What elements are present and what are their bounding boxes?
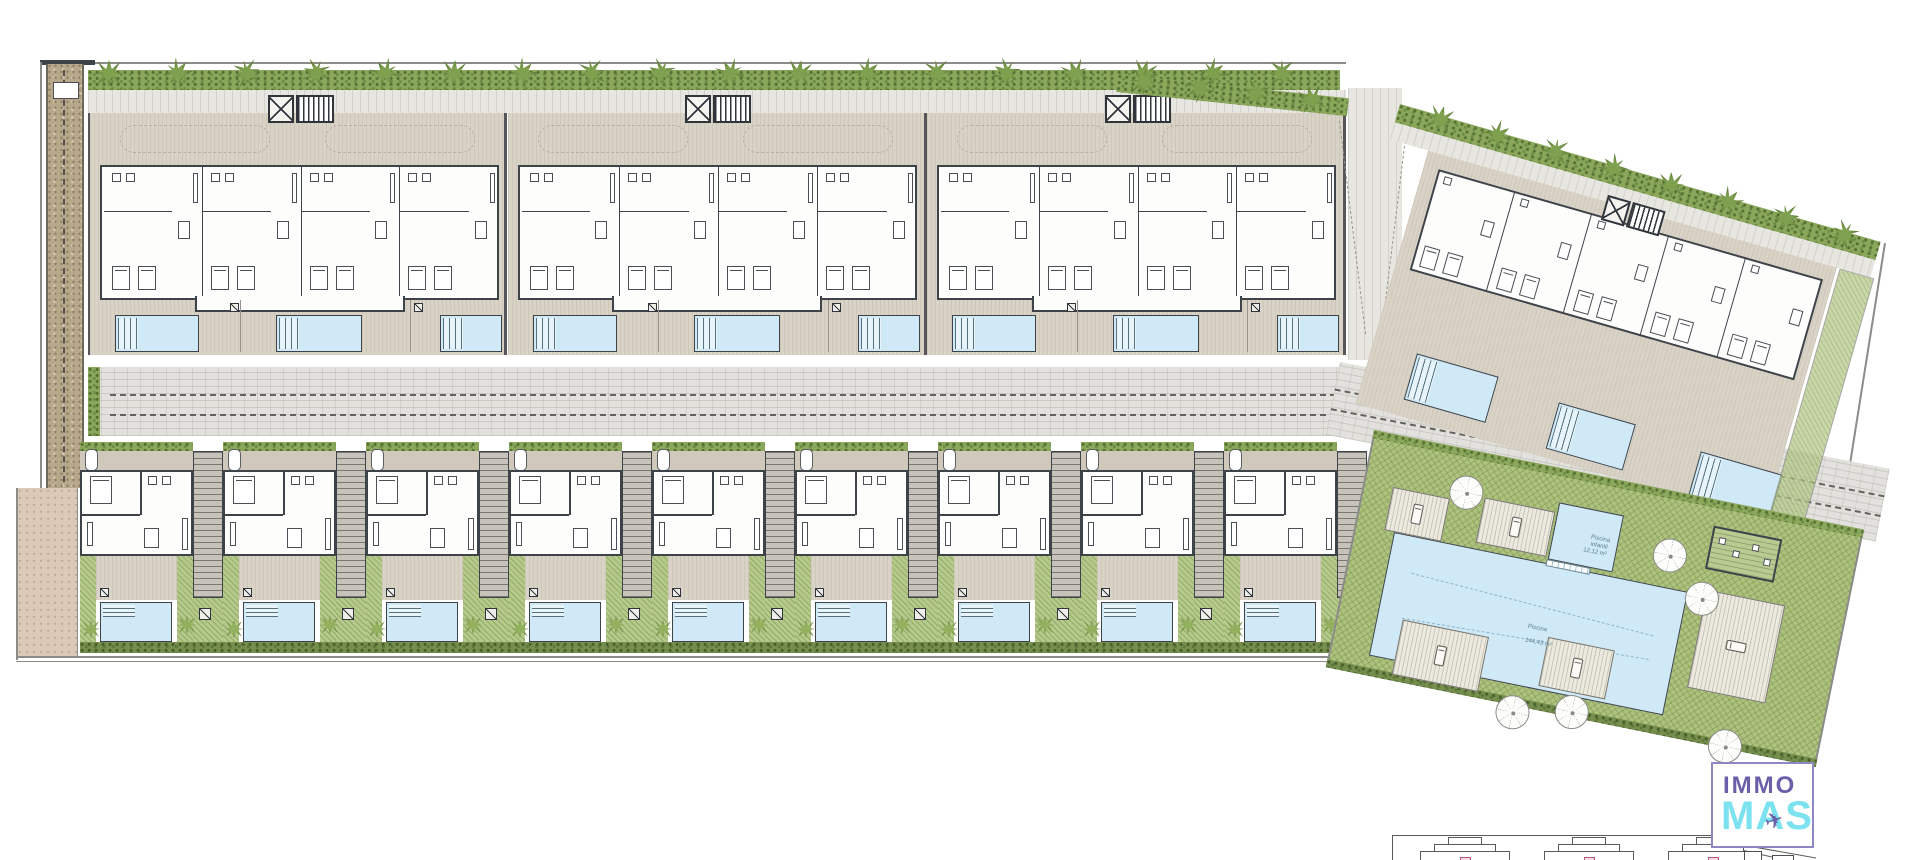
bathroom-fixture bbox=[1259, 173, 1268, 182]
bathroom-fixture bbox=[1673, 242, 1683, 252]
bathroom-fixture bbox=[1292, 476, 1301, 485]
interior-wall-v bbox=[426, 472, 428, 515]
planter-box bbox=[100, 588, 109, 597]
private-pool bbox=[694, 315, 780, 352]
bed-icon bbox=[519, 476, 541, 504]
entry-terrace bbox=[938, 451, 1051, 470]
bed-icon bbox=[112, 266, 130, 290]
bathroom-fixture bbox=[642, 173, 651, 182]
kitchen-counter bbox=[1183, 518, 1189, 550]
pool-steps bbox=[961, 605, 993, 617]
pergola-seat bbox=[1732, 550, 1740, 558]
bed-icon bbox=[310, 266, 328, 290]
bathroom-fixture bbox=[448, 476, 457, 485]
bed-icon bbox=[975, 266, 993, 290]
private-pool bbox=[1113, 315, 1199, 352]
garden-between bbox=[1051, 598, 1081, 642]
apartment-cluster bbox=[100, 165, 499, 300]
lounger-icon bbox=[1509, 516, 1523, 538]
townhouse-unit bbox=[223, 442, 366, 642]
townhouse-rooms bbox=[366, 470, 479, 556]
kitchen-counter bbox=[1326, 518, 1332, 550]
gate-box bbox=[53, 82, 79, 99]
pool-steps bbox=[1116, 318, 1136, 349]
interior-wall-v bbox=[855, 472, 857, 515]
main-pool-name: Piscina bbox=[1527, 623, 1547, 634]
townhouse-unit bbox=[652, 442, 795, 642]
entry-terrace bbox=[80, 451, 193, 470]
bathroom-fixture bbox=[310, 173, 319, 182]
palm-icon bbox=[1036, 616, 1054, 634]
planter-box bbox=[243, 588, 252, 597]
bed-icon bbox=[1519, 274, 1540, 300]
dining-table bbox=[475, 221, 487, 239]
bed-icon bbox=[1650, 312, 1671, 338]
bed-icon bbox=[654, 266, 672, 290]
interior-wall-v bbox=[998, 472, 1000, 515]
road-dash-1 bbox=[110, 394, 1346, 396]
planter-box bbox=[386, 588, 395, 597]
kitchen-counter bbox=[1129, 173, 1134, 203]
gravel-path-left-lower bbox=[18, 488, 78, 656]
palm-icon bbox=[893, 616, 911, 634]
bathtub-icon bbox=[371, 449, 384, 471]
garden-between bbox=[1194, 598, 1224, 642]
planter-box bbox=[1101, 588, 1110, 597]
sofa-icon bbox=[945, 522, 951, 546]
townhouse-unit bbox=[80, 442, 223, 642]
townhouse-top-hedge bbox=[795, 442, 908, 451]
planter-box bbox=[771, 608, 783, 620]
sofa-icon bbox=[659, 522, 665, 546]
elevator-icon bbox=[1105, 95, 1131, 123]
terrace-guide bbox=[120, 125, 270, 153]
bed-icon bbox=[408, 266, 426, 290]
dining-table bbox=[375, 221, 387, 239]
townhouse-pool bbox=[243, 602, 315, 642]
palm-icon bbox=[940, 620, 958, 638]
townhouse-unit bbox=[795, 442, 938, 642]
apartment-corridor-wall bbox=[400, 211, 469, 212]
bathroom-fixture bbox=[1048, 173, 1057, 182]
elevation-unit bbox=[1544, 837, 1634, 860]
elevator-icon bbox=[685, 95, 711, 123]
interior-wall-h bbox=[1226, 514, 1284, 516]
stairwell bbox=[908, 451, 938, 598]
terrace-guide bbox=[1162, 125, 1312, 153]
bathroom-fixture bbox=[1443, 176, 1453, 186]
terrace-divider bbox=[240, 300, 241, 352]
kitchen-counter bbox=[808, 173, 813, 203]
bed-icon bbox=[1245, 266, 1263, 290]
bathtub-icon bbox=[228, 449, 241, 471]
bathroom-fixture bbox=[324, 173, 333, 182]
pool-steps bbox=[103, 605, 135, 617]
site-boundary-top bbox=[40, 62, 1346, 64]
bathroom-fixture bbox=[1306, 476, 1315, 485]
pool-steps bbox=[389, 605, 421, 617]
bathroom-fixture bbox=[126, 173, 135, 182]
apartment-corridor-wall bbox=[1040, 211, 1108, 212]
bathroom-fixture bbox=[949, 173, 958, 182]
dining-table bbox=[1711, 286, 1726, 304]
bed-icon bbox=[556, 266, 574, 290]
planter-box bbox=[1067, 303, 1076, 312]
dining-table bbox=[1145, 528, 1160, 548]
bathroom-fixture bbox=[148, 476, 157, 485]
kitchen-counter bbox=[908, 173, 913, 203]
bed-icon bbox=[1750, 340, 1771, 366]
dining-table bbox=[573, 528, 588, 548]
bathroom-fixture bbox=[112, 173, 121, 182]
townhouse-pool bbox=[958, 602, 1030, 642]
apartment-corridor-wall bbox=[719, 211, 787, 212]
elevation-unit bbox=[1420, 837, 1510, 860]
garden-between bbox=[479, 598, 509, 642]
apartment-unit bbox=[522, 167, 621, 298]
bathroom-fixture bbox=[1245, 173, 1254, 182]
pool-steps bbox=[697, 318, 717, 349]
townhouse-top-hedge bbox=[1224, 442, 1337, 451]
palm-icon bbox=[321, 616, 339, 634]
townhouse-rooms bbox=[509, 470, 622, 556]
planter-box bbox=[1244, 588, 1253, 597]
palm-icon bbox=[511, 620, 529, 638]
bed-icon bbox=[949, 266, 967, 290]
private-pool bbox=[533, 315, 617, 352]
planter-box bbox=[199, 608, 211, 620]
interior-wall-v bbox=[1141, 472, 1143, 515]
apartment-cluster bbox=[518, 165, 917, 300]
apartment-module bbox=[88, 113, 507, 355]
bed-icon bbox=[1074, 266, 1092, 290]
bed-icon bbox=[1496, 267, 1517, 293]
townhouse-rooms bbox=[795, 470, 908, 556]
apartment-corridor-wall bbox=[302, 211, 370, 212]
pergola-seat bbox=[1718, 537, 1726, 545]
elevator-icon bbox=[268, 95, 294, 123]
apartment-module bbox=[508, 113, 927, 355]
townhouse-top-hedge bbox=[1081, 442, 1194, 451]
kitchen-counter bbox=[610, 173, 615, 203]
apartment-unit bbox=[1237, 167, 1336, 298]
bathroom-fixture bbox=[720, 476, 729, 485]
bathroom-fixture bbox=[591, 476, 600, 485]
townhouse-pool bbox=[529, 602, 601, 642]
palm-icon bbox=[750, 616, 768, 634]
pergola-seat bbox=[1763, 558, 1771, 566]
road-dash-2 bbox=[110, 414, 1346, 416]
bed-icon bbox=[1727, 334, 1748, 360]
tree-icon bbox=[1658, 172, 1684, 198]
garden-between bbox=[336, 598, 366, 642]
stairs-icon bbox=[296, 95, 334, 123]
dining-table bbox=[1312, 221, 1324, 239]
townhouse-unit bbox=[366, 442, 509, 642]
stairs-icon bbox=[713, 95, 751, 123]
townhouse-pool bbox=[1244, 602, 1316, 642]
townhouse-bottom-hedge bbox=[80, 642, 1368, 653]
bed-icon bbox=[1442, 252, 1463, 278]
palm-icon bbox=[654, 620, 672, 638]
terrace-divider bbox=[410, 300, 411, 352]
dining-table bbox=[1288, 528, 1303, 548]
townhouse-pool bbox=[386, 602, 458, 642]
interior-wall-h bbox=[797, 514, 855, 516]
kitchen-counter bbox=[292, 173, 297, 203]
bed-icon bbox=[138, 266, 156, 290]
interior-wall-h bbox=[368, 514, 426, 516]
dining-table bbox=[1015, 221, 1027, 239]
apartment-unit bbox=[941, 167, 1040, 298]
kitchen-counter bbox=[1030, 173, 1035, 203]
kitchen-counter bbox=[325, 518, 331, 550]
site-boundary-left-upper bbox=[40, 62, 42, 490]
bathroom-fixture bbox=[162, 476, 171, 485]
bathroom-fixture bbox=[1020, 476, 1029, 485]
site-plan-canvas: Piscina 144,43 m² Piscina infantil 12,12… bbox=[0, 0, 1920, 860]
interior-wall-h bbox=[940, 514, 998, 516]
palm-icon bbox=[82, 620, 100, 638]
kitchen-counter bbox=[468, 518, 474, 550]
bed-icon bbox=[662, 476, 684, 504]
bathroom-fixture bbox=[1163, 476, 1172, 485]
private-pool bbox=[276, 315, 362, 352]
palm-icon bbox=[368, 620, 386, 638]
dining-table bbox=[859, 528, 874, 548]
bathroom-fixture bbox=[741, 173, 750, 182]
palm-icon bbox=[225, 620, 243, 638]
bathroom-fixture bbox=[1596, 220, 1606, 230]
pool-steps bbox=[861, 318, 881, 349]
lounger-icon bbox=[1433, 645, 1447, 667]
pool-steps bbox=[536, 318, 556, 349]
bathtub-icon bbox=[943, 449, 956, 471]
townhouse-top-hedge bbox=[366, 442, 479, 451]
interior-wall-h bbox=[654, 514, 712, 516]
palm-icon bbox=[1083, 620, 1101, 638]
dining-table bbox=[1480, 220, 1495, 238]
bathroom-fixture bbox=[826, 173, 835, 182]
dining-table bbox=[1114, 221, 1126, 239]
site-boundary-bottom2 bbox=[16, 661, 1368, 662]
bathroom-fixture bbox=[734, 476, 743, 485]
bed-icon bbox=[1673, 318, 1694, 344]
elevation-detail-box bbox=[1772, 855, 1794, 860]
dining-table bbox=[144, 528, 159, 548]
interior-wall-v bbox=[283, 472, 285, 515]
stairs-icon bbox=[1133, 95, 1171, 123]
main-road bbox=[88, 367, 1346, 436]
entry-terrace bbox=[366, 451, 479, 470]
bed-icon bbox=[336, 266, 354, 290]
interior-wall-v bbox=[712, 472, 714, 515]
bed-icon bbox=[727, 266, 745, 290]
immomas-logo: IMMO MAS ✈ bbox=[1711, 762, 1814, 848]
terrace-divider bbox=[828, 300, 829, 352]
bathroom-fixture bbox=[877, 476, 886, 485]
pool-steps bbox=[279, 318, 299, 349]
apartment-unit bbox=[1139, 167, 1238, 298]
townhouse-pool bbox=[100, 602, 172, 642]
dining-table bbox=[1002, 528, 1017, 548]
bathroom-fixture bbox=[1161, 173, 1170, 182]
interior-wall-h bbox=[1083, 514, 1141, 516]
planter-box bbox=[485, 608, 497, 620]
sofa-icon bbox=[230, 522, 236, 546]
lounger-icon bbox=[1410, 503, 1424, 525]
bed-icon bbox=[1419, 245, 1440, 271]
bathroom-fixture bbox=[1147, 173, 1156, 182]
palm-icon bbox=[1226, 620, 1244, 638]
bed-icon bbox=[1147, 266, 1165, 290]
bathroom-fixture bbox=[840, 173, 849, 182]
garden-between bbox=[908, 598, 938, 642]
pool-steps bbox=[443, 318, 463, 349]
private-pool bbox=[440, 315, 502, 352]
bed-icon bbox=[1596, 296, 1617, 322]
dining-table bbox=[893, 221, 905, 239]
apartment-unit bbox=[203, 167, 302, 298]
apartment-unit bbox=[818, 167, 917, 298]
dining-table bbox=[1634, 264, 1649, 282]
kitchen-counter bbox=[1040, 518, 1046, 550]
apartment-cluster-bump bbox=[612, 296, 822, 312]
bed-icon bbox=[434, 266, 452, 290]
apartment-unit bbox=[1040, 167, 1139, 298]
stairwell bbox=[765, 451, 795, 598]
townhouse-unit bbox=[509, 442, 652, 642]
stairwell bbox=[479, 451, 509, 598]
townhouse-rooms bbox=[223, 470, 336, 556]
private-pool bbox=[858, 315, 920, 352]
palm-icon bbox=[1179, 616, 1197, 634]
apartment-unit bbox=[620, 167, 719, 298]
dining-table bbox=[430, 528, 445, 548]
planter-box bbox=[1200, 608, 1212, 620]
planter-box bbox=[342, 608, 354, 620]
interior-wall-h bbox=[511, 514, 569, 516]
townhouse-rooms bbox=[938, 470, 1051, 556]
garden-between bbox=[622, 598, 652, 642]
bathtub-icon bbox=[1229, 449, 1242, 471]
townhouse-pool bbox=[1101, 602, 1173, 642]
lounger-icon bbox=[1725, 640, 1747, 654]
pool-steps bbox=[955, 318, 975, 349]
entry-terrace bbox=[795, 451, 908, 470]
bathroom-fixture bbox=[211, 173, 220, 182]
bed-icon bbox=[1271, 266, 1289, 290]
pool-steps bbox=[1104, 605, 1136, 617]
apartment-unit bbox=[302, 167, 401, 298]
bathtub-icon bbox=[514, 449, 527, 471]
dining-table bbox=[716, 528, 731, 548]
apartment-cluster-bump bbox=[195, 296, 405, 312]
bed-icon bbox=[233, 476, 255, 504]
dining-table bbox=[595, 221, 607, 239]
pool-steps bbox=[532, 605, 564, 617]
planter-box bbox=[414, 303, 423, 312]
bed-icon bbox=[826, 266, 844, 290]
site-boundary-bottom bbox=[16, 656, 1368, 658]
stairwell bbox=[1194, 451, 1224, 598]
planter-box bbox=[1251, 303, 1260, 312]
bathroom-fixture bbox=[225, 173, 234, 182]
sofa-icon bbox=[87, 522, 93, 546]
kitchen-counter bbox=[193, 173, 198, 203]
private-pool bbox=[115, 315, 199, 352]
kitchen-counter bbox=[754, 518, 760, 550]
garden-between bbox=[193, 598, 223, 642]
townhouse-top-hedge bbox=[938, 442, 1051, 451]
pool-steps bbox=[675, 605, 707, 617]
apartment-cluster bbox=[937, 165, 1336, 300]
dining-table bbox=[178, 221, 190, 239]
bathtub-icon bbox=[657, 449, 670, 471]
apartment-corridor-wall bbox=[1139, 211, 1207, 212]
kitchen-counter bbox=[611, 518, 617, 550]
palm-icon bbox=[607, 616, 625, 634]
bed-icon bbox=[948, 476, 970, 504]
entry-terrace bbox=[223, 451, 336, 470]
interior-wall-h bbox=[82, 514, 140, 516]
tree-icon bbox=[96, 60, 122, 86]
bathroom-fixture bbox=[530, 173, 539, 182]
bed-icon bbox=[1091, 476, 1113, 504]
apartment-corridor-wall bbox=[941, 211, 1009, 212]
townhouse-rooms bbox=[80, 470, 193, 556]
dining-table bbox=[1789, 308, 1804, 326]
bed-icon bbox=[530, 266, 548, 290]
kitchen-counter bbox=[182, 518, 188, 550]
dining-table bbox=[1557, 242, 1572, 260]
interior-wall-v bbox=[1284, 472, 1286, 515]
townhouse-top-hedge bbox=[223, 442, 336, 451]
apartment-module bbox=[927, 113, 1346, 355]
bathroom-fixture bbox=[305, 476, 314, 485]
entry-terrace bbox=[1224, 451, 1337, 470]
bed-icon bbox=[90, 476, 112, 504]
interior-wall-v bbox=[140, 472, 142, 515]
bathtub-icon bbox=[800, 449, 813, 471]
gravel-road-left bbox=[46, 64, 84, 488]
gravel-road-centerline bbox=[63, 70, 65, 482]
elevation-detail-box bbox=[1744, 851, 1762, 860]
bed-icon bbox=[211, 266, 229, 290]
bed-icon bbox=[852, 266, 870, 290]
bathtub-icon bbox=[1086, 449, 1099, 471]
road-end-hedge bbox=[88, 367, 100, 436]
terrace-divider bbox=[1247, 300, 1248, 352]
townhouse-rooms bbox=[1081, 470, 1194, 556]
planter-box bbox=[648, 303, 657, 312]
garden-between bbox=[765, 598, 795, 642]
bathtub-icon bbox=[85, 449, 98, 471]
interior-wall-h bbox=[225, 514, 283, 516]
bathroom-fixture bbox=[1006, 476, 1015, 485]
apartment-corridor-wall bbox=[104, 211, 172, 212]
bathroom-fixture bbox=[291, 476, 300, 485]
planter-box bbox=[958, 588, 967, 597]
palm-icon bbox=[178, 616, 196, 634]
palm-icon bbox=[797, 620, 815, 638]
bathroom-fixture bbox=[544, 173, 553, 182]
planter-box bbox=[628, 608, 640, 620]
stairwell bbox=[622, 451, 652, 598]
bathroom-fixture bbox=[1149, 476, 1158, 485]
planter-box bbox=[230, 303, 239, 312]
pool-steps bbox=[1280, 318, 1300, 349]
